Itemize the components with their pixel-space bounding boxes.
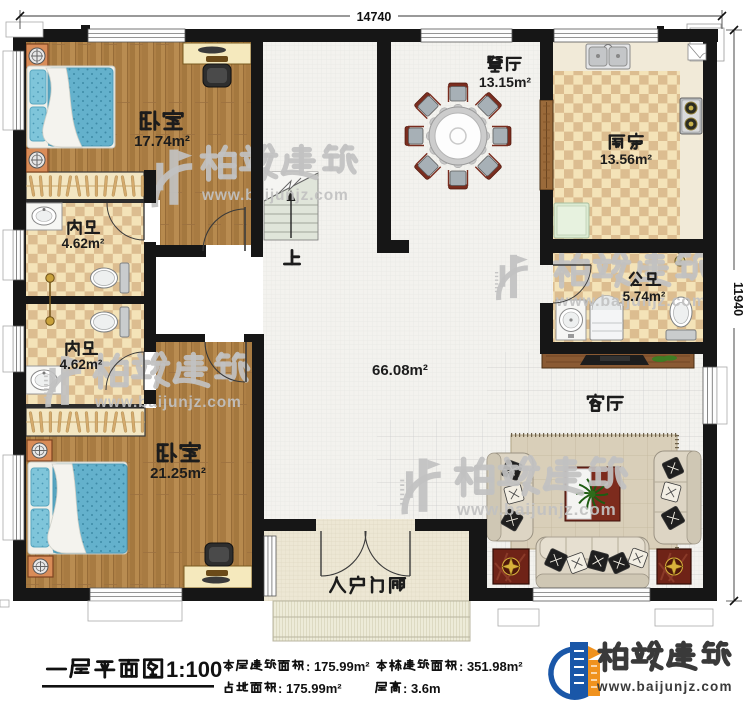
svg-text:: 3.6m: : 3.6m (403, 681, 441, 696)
svg-text:www.baijunjz.com: www.baijunjz.com (456, 500, 617, 519)
svg-text:: 175.99m²: : 175.99m² (306, 659, 370, 674)
svg-text:21.25m²: 21.25m² (150, 465, 206, 482)
svg-text:11940: 11940 (731, 282, 745, 316)
svg-text:14740: 14740 (357, 10, 392, 24)
svg-text:13.56m²: 13.56m² (600, 151, 652, 167)
svg-text:17.74m²: 17.74m² (134, 133, 190, 150)
svg-text:4.62m²: 4.62m² (60, 357, 103, 372)
svg-text:www.baijunjz.com: www.baijunjz.com (94, 394, 242, 411)
svg-text:www.baijunjz.com: www.baijunjz.com (596, 679, 733, 694)
svg-text:5.74m²: 5.74m² (623, 289, 666, 304)
svg-text:www.baijunjz.com: www.baijunjz.com (201, 187, 349, 204)
svg-text:1:100: 1:100 (166, 657, 222, 682)
svg-text:66.08m²: 66.08m² (372, 362, 428, 379)
svg-text:13.15m²: 13.15m² (479, 74, 531, 90)
svg-text:: 351.98m²: : 351.98m² (459, 659, 523, 674)
svg-text:4.62m²: 4.62m² (62, 236, 105, 251)
svg-text:: 175.99m²: : 175.99m² (278, 681, 342, 696)
